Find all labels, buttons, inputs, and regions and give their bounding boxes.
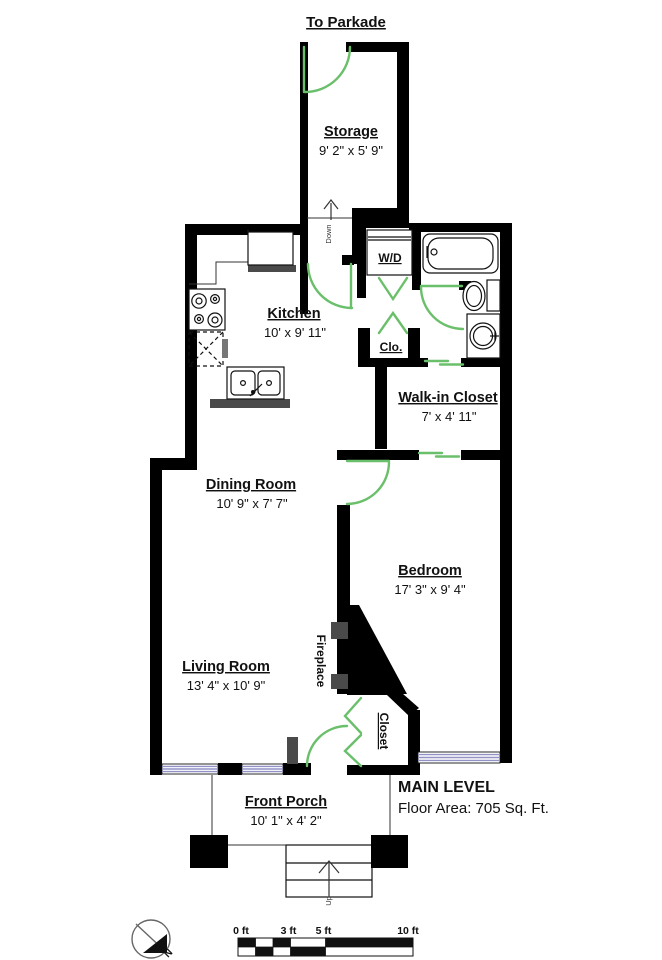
wall-walkin-left bbox=[375, 367, 387, 449]
wd-label: W/D bbox=[378, 251, 402, 265]
floor-plan-page: 0 ft 3 ft 5 ft 10 ft N To Parkade Storag… bbox=[0, 0, 662, 960]
to-parkade-label: To Parkade bbox=[306, 14, 386, 31]
wall-storage-right bbox=[397, 52, 409, 210]
porch-post-left bbox=[190, 835, 228, 868]
living-room-window-right bbox=[242, 764, 283, 774]
wall-bath-wd-divider bbox=[412, 228, 421, 290]
wall-wd-left-lower bbox=[357, 264, 366, 298]
floor-area-text: Floor Area: 705 Sq. Ft. bbox=[398, 800, 549, 817]
kitchen-sink-icon bbox=[227, 367, 284, 399]
porch-name: Front Porch bbox=[245, 794, 327, 810]
kitchen-dims: 10' x 9' 11" bbox=[264, 325, 326, 340]
kitchen-door bbox=[308, 264, 352, 308]
kitchen-counter-outline bbox=[189, 230, 248, 284]
scale-bar: 0 ft 3 ft 5 ft 10 ft bbox=[233, 925, 419, 956]
main-level-title: MAIN LEVEL bbox=[398, 779, 495, 796]
clo-label: Clo. bbox=[380, 340, 403, 354]
scale-label-10ft: 10 ft bbox=[397, 925, 419, 937]
fireplace-hearth-lower bbox=[331, 674, 348, 689]
bathroom-fixtures bbox=[423, 234, 500, 358]
dining-dims: 10' 9" x 7' 7" bbox=[216, 496, 288, 511]
down-label: Down bbox=[324, 224, 333, 243]
clo-bifold-door bbox=[379, 313, 407, 333]
windows bbox=[162, 752, 500, 774]
walkin-dims: 7' x 4' 11" bbox=[422, 409, 477, 424]
wall-bath-top bbox=[409, 223, 512, 232]
stove-icon bbox=[189, 289, 225, 330]
scale-label-0ft: 0 ft bbox=[233, 925, 249, 937]
walkin-bottom-slider-door bbox=[419, 453, 459, 457]
porch-stairs bbox=[286, 845, 372, 897]
walkin-top-slider-door bbox=[425, 361, 463, 365]
wall-storage-top bbox=[346, 42, 409, 52]
bathroom-door bbox=[421, 286, 463, 329]
living-room-window-left bbox=[162, 764, 218, 774]
compass-icon: N bbox=[132, 920, 175, 960]
porch-dims: 10' 1" x 4' 2" bbox=[250, 813, 322, 828]
dining-name: Dining Room bbox=[206, 477, 296, 493]
wall-door-jamb bbox=[342, 255, 354, 265]
storage-name: Storage bbox=[324, 124, 378, 140]
kitchen-counter-bar bbox=[248, 265, 296, 272]
dishwasher-handle bbox=[222, 339, 228, 358]
wall-closet-bottom bbox=[347, 765, 420, 775]
wall-bedroom-top-right bbox=[461, 450, 512, 460]
wall-left-lower bbox=[150, 470, 162, 775]
bedroom-door bbox=[347, 461, 389, 504]
wall-bath-bottom-right bbox=[461, 358, 512, 367]
wall-living-bedroom-divider bbox=[337, 505, 350, 607]
living-name: Living Room bbox=[182, 659, 270, 675]
entry-door-post bbox=[287, 737, 298, 764]
porch-post-right bbox=[371, 835, 408, 868]
bathtub-icon bbox=[423, 234, 498, 273]
wall-left-upper bbox=[185, 224, 197, 458]
bath-sink-icon bbox=[467, 314, 500, 358]
interior-stairs bbox=[307, 200, 352, 220]
living-dims: 13' 4" x 10' 9" bbox=[187, 678, 266, 693]
wall-left-jog bbox=[150, 458, 197, 470]
fireplace-hearth-upper bbox=[331, 622, 348, 639]
toilet-icon bbox=[463, 280, 500, 311]
bedroom-name: Bedroom bbox=[398, 563, 462, 579]
closet-label: Closet bbox=[377, 713, 391, 750]
walkin-name: Walk-in Closet bbox=[398, 390, 498, 406]
closet-bifold-door bbox=[345, 698, 361, 766]
wall-bedroom-top-left bbox=[337, 450, 419, 460]
kitchen-counter-edge bbox=[210, 399, 290, 408]
storage-dims: 9' 2" x 5' 9" bbox=[319, 143, 383, 158]
bedroom-dims: 17' 3" x 9' 4" bbox=[394, 582, 466, 597]
wd-bifold-door bbox=[379, 278, 407, 299]
wall-wd-left-upper bbox=[352, 228, 366, 264]
bedroom-window bbox=[418, 752, 500, 763]
kitchen-name: Kitchen bbox=[267, 306, 320, 322]
kitchen-peninsula-counter bbox=[248, 232, 293, 265]
up-label: Up bbox=[324, 896, 333, 906]
wall-bath-bottom-left bbox=[420, 358, 428, 367]
wall-bottom-corner bbox=[150, 763, 162, 775]
wall-window-mullion bbox=[218, 763, 242, 775]
entry-door bbox=[307, 726, 347, 766]
wall-junction-block bbox=[352, 208, 409, 228]
wall-clo-bottom bbox=[358, 358, 420, 367]
compass-north-label: N bbox=[162, 947, 175, 960]
floor-plan-drawing: 0 ft 3 ft 5 ft 10 ft N To Parkade Storag… bbox=[0, 0, 662, 960]
scale-label-3ft: 3 ft bbox=[281, 925, 297, 937]
fireplace-label: Fireplace bbox=[314, 635, 328, 688]
storage-door bbox=[304, 47, 350, 92]
scale-label-5ft: 5 ft bbox=[316, 925, 332, 937]
wall-right-exterior bbox=[500, 223, 512, 763]
